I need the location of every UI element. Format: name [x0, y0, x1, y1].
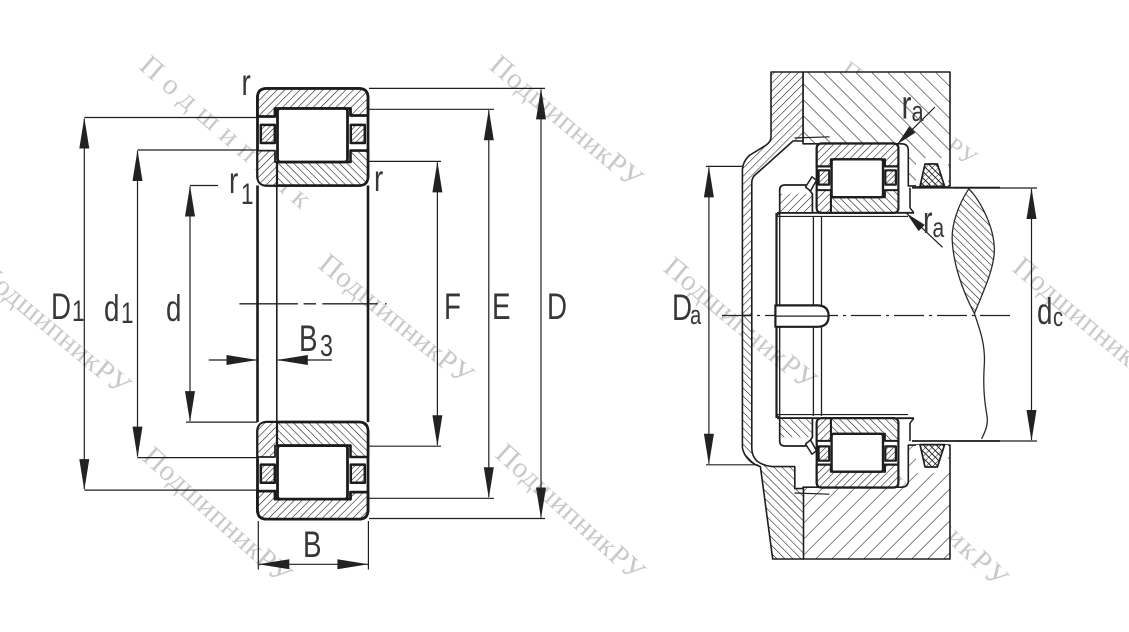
svg-text:a: a — [912, 96, 925, 128]
svg-text:d: d — [104, 287, 119, 329]
svg-text:d: d — [1037, 290, 1052, 332]
svg-text:r: r — [242, 61, 251, 103]
svg-text:B: B — [299, 317, 318, 359]
svg-text:c: c — [1053, 302, 1063, 333]
svg-text:r: r — [229, 159, 238, 201]
svg-text:3: 3 — [320, 328, 333, 363]
svg-text:1: 1 — [121, 296, 134, 330]
svg-text:a: a — [690, 300, 702, 331]
svg-text:F: F — [444, 285, 461, 327]
svg-text:d: d — [166, 287, 181, 329]
svg-text:1: 1 — [72, 294, 85, 328]
svg-text:D: D — [672, 286, 692, 328]
svg-text:B: B — [303, 523, 322, 565]
svg-text:1: 1 — [241, 177, 254, 211]
svg-text:r: r — [902, 83, 912, 127]
svg-text:D: D — [547, 285, 567, 327]
svg-text:a: a — [933, 213, 945, 244]
svg-text:E: E — [492, 285, 511, 327]
svg-text:r: r — [923, 200, 932, 242]
svg-text:r: r — [374, 157, 383, 199]
svg-text:D: D — [51, 285, 71, 327]
